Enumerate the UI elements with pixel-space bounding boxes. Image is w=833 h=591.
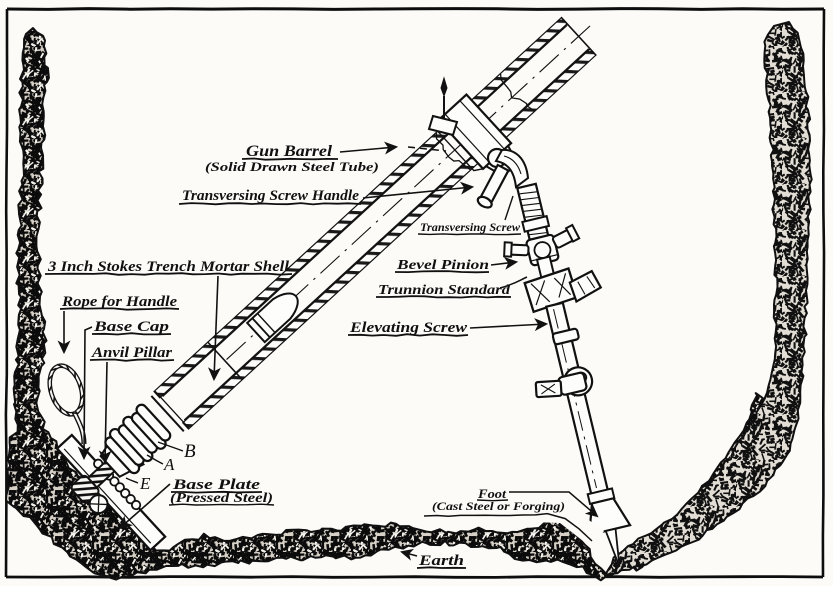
- svg-text:Gun Barrel: Gun Barrel: [246, 143, 333, 160]
- svg-text:Foot: Foot: [477, 487, 507, 501]
- svg-text:A: A: [163, 455, 175, 474]
- svg-text:(Cast Steel or Forging): (Cast Steel or Forging): [432, 501, 565, 513]
- svg-text:Transversing Screw: Transversing Screw: [420, 222, 520, 234]
- svg-text:Anvil Pillar: Anvil Pillar: [91, 345, 173, 361]
- svg-text:B: B: [184, 441, 196, 462]
- svg-text:3 Inch Stokes Trench Mortar Sh: 3 Inch Stokes Trench Mortar Shell: [47, 259, 289, 275]
- svg-text:E: E: [139, 474, 151, 493]
- svg-text:Transversing Screw Handle: Transversing Screw Handle: [182, 188, 360, 204]
- svg-text:Trunnion Standard: Trunnion Standard: [378, 283, 511, 298]
- svg-text:(Pressed Steel): (Pressed Steel): [170, 490, 273, 505]
- svg-text:(Solid Drawn Steel Tube): (Solid Drawn Steel Tube): [205, 160, 379, 174]
- svg-text:Earth: Earth: [418, 553, 464, 569]
